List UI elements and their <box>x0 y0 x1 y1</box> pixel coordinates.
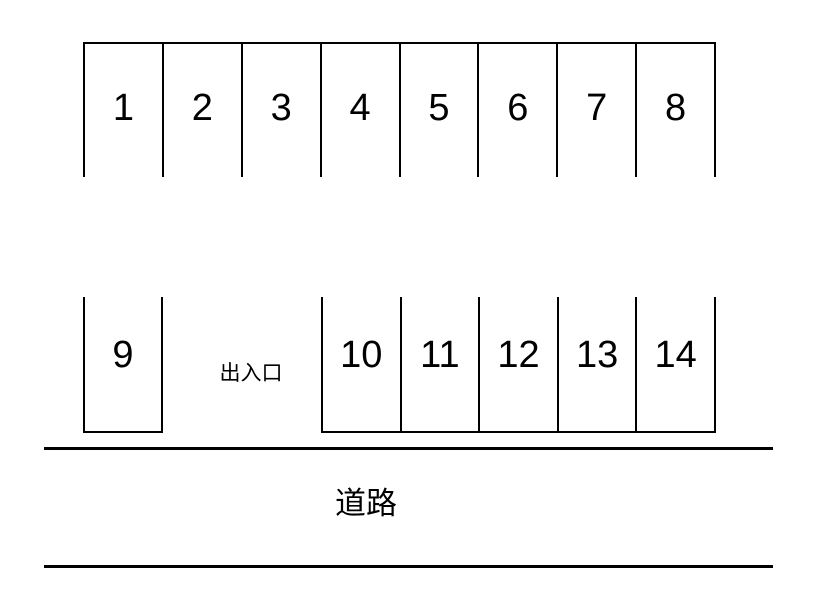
space-number-9: 9 <box>112 336 133 374</box>
space-number-10: 10 <box>340 336 382 374</box>
parking-space-11: 11 <box>400 297 479 431</box>
parking-row-bottom: 10 11 12 13 14 <box>321 297 716 433</box>
space-number-3: 3 <box>271 89 292 127</box>
parking-space-2: 2 <box>162 44 241 177</box>
parking-space-4: 4 <box>320 44 399 177</box>
space-number-13: 13 <box>576 336 618 374</box>
space-number-8: 8 <box>665 89 686 127</box>
parking-space-13: 13 <box>557 297 636 431</box>
space-number-6: 6 <box>507 89 528 127</box>
road-bottom-line <box>44 565 773 568</box>
parking-row-top: 1 2 3 4 5 6 7 8 <box>83 42 716 177</box>
parking-space-3: 3 <box>241 44 320 177</box>
entrance-exit-label: 出入口 <box>201 361 301 386</box>
parking-space-7: 7 <box>556 44 635 177</box>
space-number-1: 1 <box>113 89 134 127</box>
parking-space-8: 8 <box>635 44 716 177</box>
parking-space-10: 10 <box>321 297 400 431</box>
road-label: 道路 <box>306 487 426 520</box>
space-number-4: 4 <box>349 89 370 127</box>
parking-space-12: 12 <box>478 297 557 431</box>
parking-lot-diagram: 1 2 3 4 5 6 7 8 9 出入口 10 11 <box>0 0 829 609</box>
space-number-12: 12 <box>497 336 539 374</box>
parking-space-5: 5 <box>399 44 478 177</box>
space-number-7: 7 <box>586 89 607 127</box>
space-number-11: 11 <box>420 336 459 374</box>
parking-space-9: 9 <box>83 297 163 433</box>
parking-space-14: 14 <box>635 297 716 431</box>
space-number-14: 14 <box>655 336 697 374</box>
parking-space-6: 6 <box>477 44 556 177</box>
space-number-5: 5 <box>428 89 449 127</box>
road-top-line <box>44 447 773 450</box>
parking-space-1: 1 <box>83 44 162 177</box>
space-number-2: 2 <box>192 89 213 127</box>
